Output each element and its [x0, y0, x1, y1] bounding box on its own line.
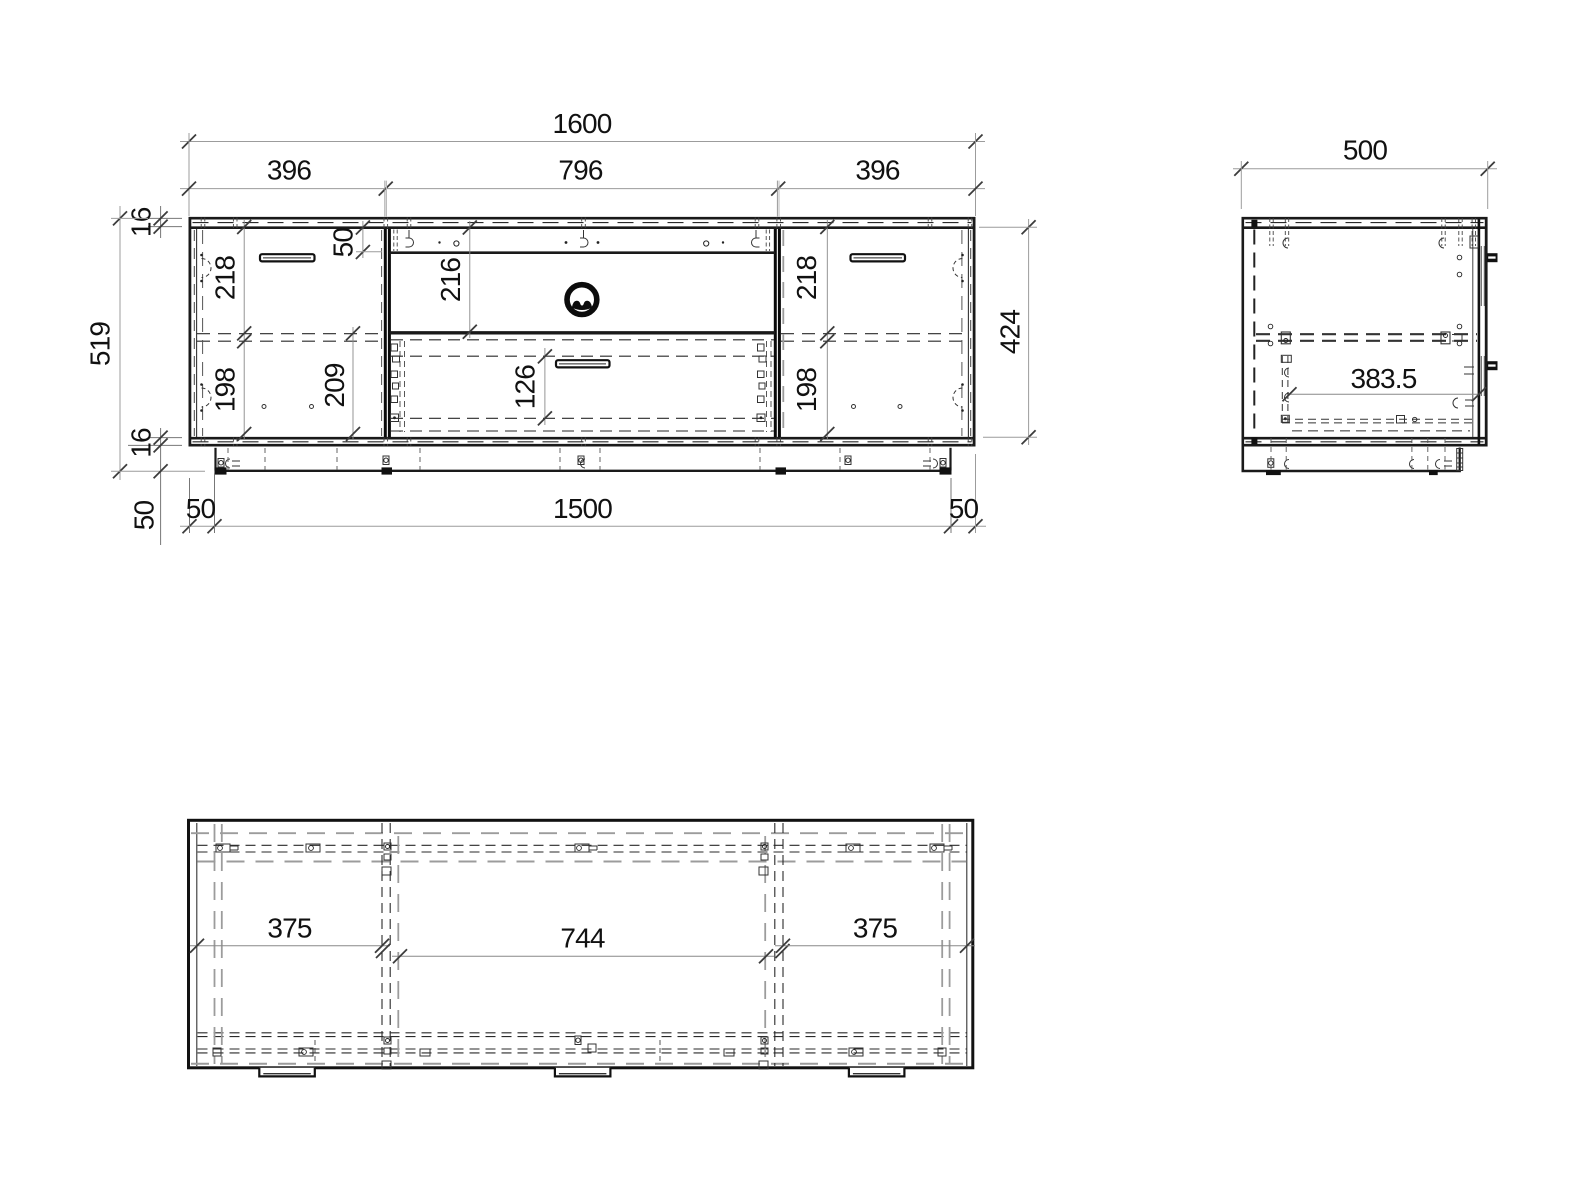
svg-text:50: 50: [129, 501, 160, 531]
svg-text:218: 218: [209, 256, 240, 301]
svg-text:16: 16: [126, 428, 157, 458]
svg-text:396: 396: [855, 155, 900, 186]
svg-text:396: 396: [267, 155, 312, 186]
svg-text:796: 796: [558, 155, 603, 186]
svg-text:383.5: 383.5: [1350, 363, 1416, 394]
svg-text:198: 198: [791, 368, 822, 413]
svg-text:375: 375: [853, 913, 898, 944]
svg-text:519: 519: [85, 322, 116, 367]
svg-text:744: 744: [560, 923, 605, 954]
svg-text:50: 50: [328, 228, 359, 258]
svg-text:216: 216: [435, 258, 466, 303]
svg-text:16: 16: [126, 207, 157, 237]
svg-text:209: 209: [319, 363, 350, 408]
svg-text:50: 50: [949, 493, 979, 524]
svg-text:218: 218: [791, 256, 822, 301]
svg-text:500: 500: [1343, 135, 1388, 166]
svg-text:50: 50: [186, 493, 216, 524]
svg-text:126: 126: [510, 365, 541, 410]
svg-text:424: 424: [995, 310, 1026, 355]
svg-text:1600: 1600: [552, 108, 611, 139]
svg-text:198: 198: [210, 368, 241, 413]
svg-text:1500: 1500: [553, 493, 612, 524]
svg-text:375: 375: [267, 913, 312, 944]
